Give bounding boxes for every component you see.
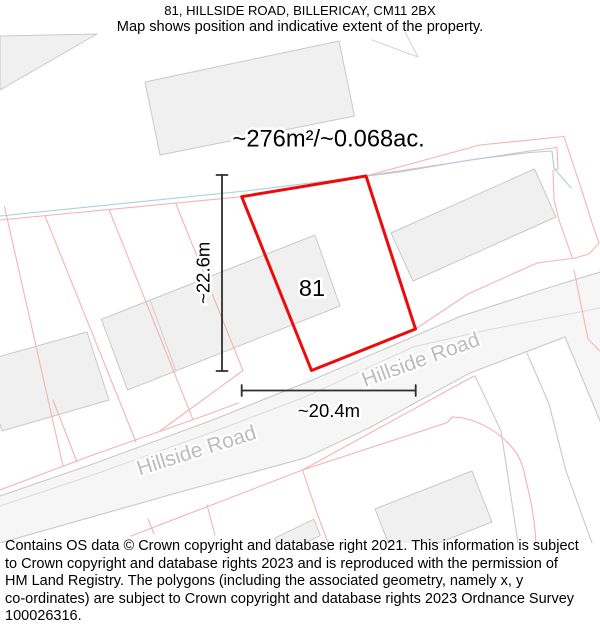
svg-text:~20.4m: ~20.4m: [298, 400, 360, 421]
svg-text:~276m²/~0.068ac.: ~276m²/~0.068ac.: [233, 127, 425, 153]
svg-text:81: 81: [299, 275, 325, 301]
svg-text:~22.6m: ~22.6m: [193, 242, 214, 304]
